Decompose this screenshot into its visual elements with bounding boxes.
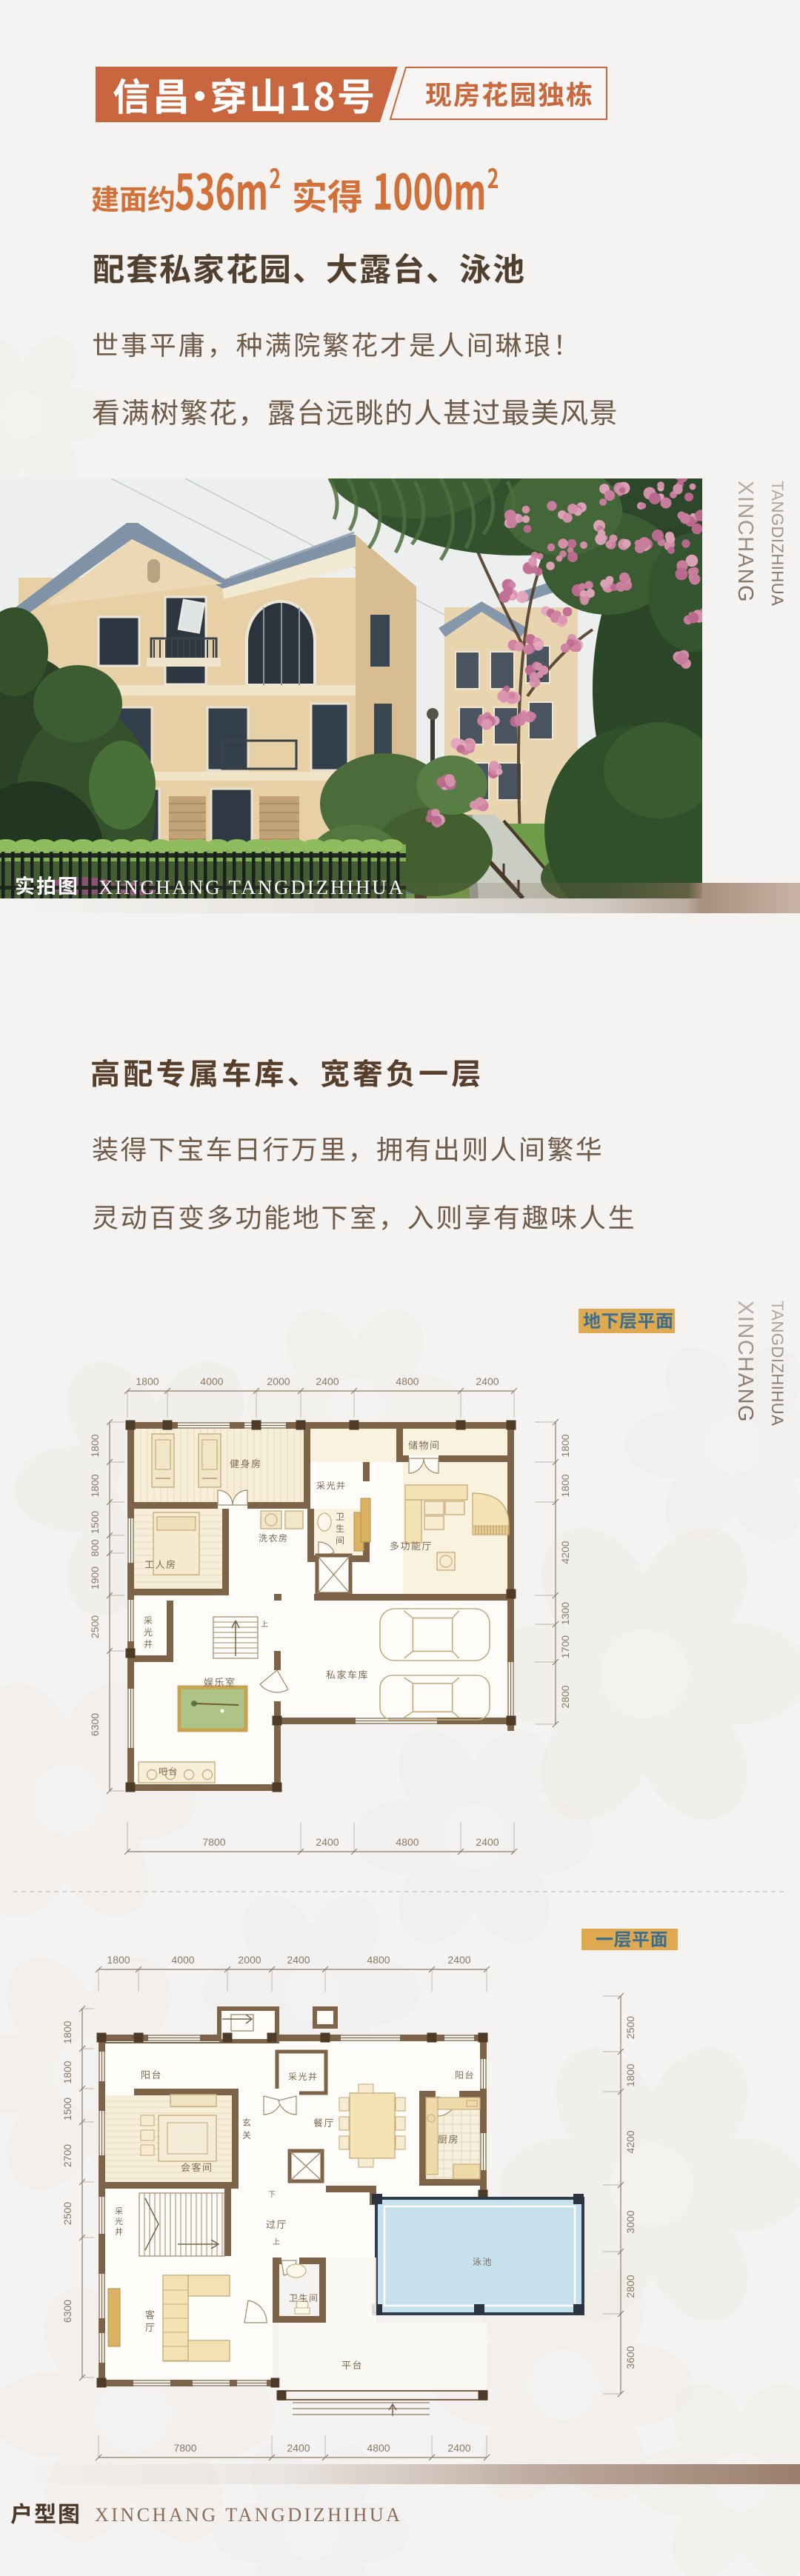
svg-text:4800: 4800 bbox=[396, 1375, 419, 1387]
svg-text:TANGDIZHIHUA: TANGDIZHIHUA bbox=[768, 1301, 787, 1426]
svg-text:XINCHANG TANGDIZHIHUA: XINCHANG TANGDIZHIHUA bbox=[95, 2504, 402, 2526]
svg-text:7800: 7800 bbox=[202, 1836, 225, 1848]
svg-text:6300: 6300 bbox=[89, 1713, 101, 1736]
svg-text:4800: 4800 bbox=[367, 1954, 390, 1966]
svg-text:2400: 2400 bbox=[287, 1954, 310, 1966]
svg-text:1800: 1800 bbox=[61, 2061, 73, 2083]
svg-text:2700: 2700 bbox=[61, 2144, 73, 2167]
svg-text:TANGDIZHIHUA: TANGDIZHIHUA bbox=[768, 481, 787, 606]
svg-text:2500: 2500 bbox=[61, 2202, 73, 2225]
svg-text:3600: 3600 bbox=[624, 2346, 636, 2369]
svg-text:2400: 2400 bbox=[447, 2442, 470, 2454]
svg-text:800: 800 bbox=[89, 1539, 101, 1557]
svg-text:2800: 2800 bbox=[559, 1685, 571, 1708]
svg-text:1800: 1800 bbox=[559, 1434, 571, 1457]
svg-text:1800: 1800 bbox=[559, 1474, 571, 1497]
svg-text:4200: 4200 bbox=[559, 1541, 571, 1564]
svg-text:1800: 1800 bbox=[107, 1954, 130, 1966]
svg-text:1800: 1800 bbox=[89, 1434, 101, 1457]
svg-text:4800: 4800 bbox=[367, 2442, 390, 2454]
svg-text:2400: 2400 bbox=[287, 2442, 310, 2454]
svg-text:1500: 1500 bbox=[61, 2098, 73, 2120]
svg-text:1800: 1800 bbox=[136, 1375, 159, 1387]
svg-text:1800: 1800 bbox=[624, 2063, 636, 2086]
svg-text:1800: 1800 bbox=[89, 1474, 101, 1497]
svg-text:1900: 1900 bbox=[89, 1566, 101, 1589]
svg-text:1500: 1500 bbox=[89, 1511, 101, 1534]
svg-text:6300: 6300 bbox=[61, 2300, 73, 2323]
svg-text:3000: 3000 bbox=[624, 2210, 636, 2233]
svg-text:4000: 4000 bbox=[171, 1954, 194, 1966]
svg-text:XINCHANG TANGDIZHIHUA: XINCHANG TANGDIZHIHUA bbox=[99, 876, 405, 898]
svg-text:2400: 2400 bbox=[316, 1375, 339, 1387]
svg-text:2400: 2400 bbox=[476, 1375, 499, 1387]
svg-text:1800: 1800 bbox=[61, 2021, 73, 2043]
svg-text:2500: 2500 bbox=[624, 2016, 636, 2039]
svg-text:XINCHANG: XINCHANG bbox=[733, 1301, 757, 1423]
svg-text:2400: 2400 bbox=[316, 1836, 339, 1848]
svg-text:1300: 1300 bbox=[559, 1602, 571, 1625]
svg-text:2000: 2000 bbox=[238, 1954, 261, 1966]
svg-text:XINCHANG: XINCHANG bbox=[733, 481, 757, 603]
svg-text:2000: 2000 bbox=[267, 1375, 290, 1387]
svg-text:2500: 2500 bbox=[89, 1615, 101, 1638]
svg-text:4800: 4800 bbox=[396, 1836, 419, 1848]
svg-text:2400: 2400 bbox=[447, 1954, 470, 1966]
svg-text:4200: 4200 bbox=[624, 2130, 636, 2153]
svg-text:1700: 1700 bbox=[559, 1635, 571, 1658]
svg-text:4000: 4000 bbox=[200, 1375, 223, 1387]
svg-text:7800: 7800 bbox=[173, 2442, 196, 2454]
svg-text:2800: 2800 bbox=[624, 2275, 636, 2298]
svg-text:2400: 2400 bbox=[476, 1836, 499, 1848]
